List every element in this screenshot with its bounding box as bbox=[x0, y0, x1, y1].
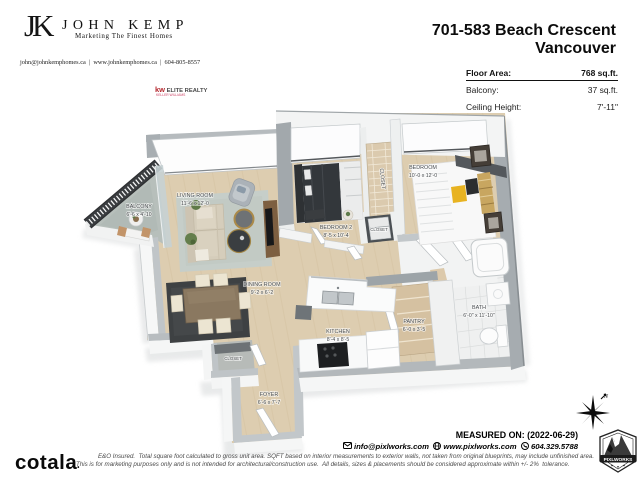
svg-text:8'-5 x 10'-4: 8'-5 x 10'-4 bbox=[323, 233, 348, 239]
svg-text:FOYER: FOYER bbox=[260, 392, 279, 398]
svg-text:BEDROOM: BEDROOM bbox=[409, 165, 437, 171]
svg-text:N: N bbox=[603, 394, 609, 400]
svg-text:CLOSET: CLOSET bbox=[224, 356, 242, 361]
svg-text:PIXLWORKS: PIXLWORKS bbox=[604, 457, 634, 463]
svg-text:CLOSET: CLOSET bbox=[370, 227, 388, 232]
svg-text:DINING ROOM: DINING ROOM bbox=[243, 282, 281, 288]
svg-text:6'-0" x 11'-10": 6'-0" x 11'-10" bbox=[463, 313, 495, 319]
svg-text:8'-4 x 8'-5: 8'-4 x 8'-5 bbox=[327, 337, 350, 343]
svg-text:KITCHEN: KITCHEN bbox=[326, 329, 350, 335]
svg-text:BEDROOM 2: BEDROOM 2 bbox=[320, 225, 352, 231]
svg-text:LIVING ROOM: LIVING ROOM bbox=[177, 193, 213, 199]
svg-text:BALCONY: BALCONY bbox=[126, 204, 152, 210]
svg-text:9'-2 x 6'-2: 9'-2 x 6'-2 bbox=[251, 290, 274, 296]
svg-text:10'-0 x 12'-0: 10'-0 x 12'-0 bbox=[409, 173, 437, 179]
svg-text:11'-6 x 12'-0: 11'-6 x 12'-0 bbox=[181, 201, 209, 207]
svg-text:6'-6 x 7'-7: 6'-6 x 7'-7 bbox=[258, 400, 281, 406]
svg-text:PANTRY: PANTRY bbox=[403, 319, 425, 325]
svg-text:6'-6 x 4'-10: 6'-6 x 4'-10 bbox=[126, 212, 151, 218]
svg-text:BATH: BATH bbox=[472, 305, 486, 311]
svg-text:6'-0 x 3'-5: 6'-0 x 3'-5 bbox=[403, 327, 426, 333]
